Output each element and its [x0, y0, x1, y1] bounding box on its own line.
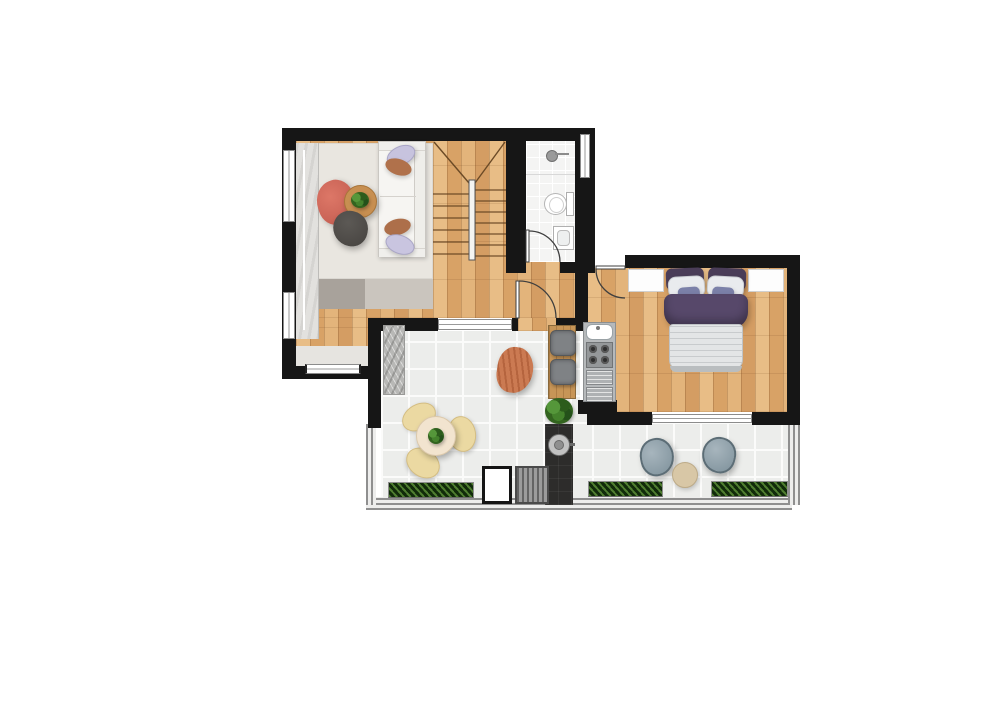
planter-left [388, 482, 474, 498]
railing-bottom [366, 497, 792, 510]
wall-terrace-left [368, 318, 381, 428]
toilet-seat [549, 197, 564, 213]
wall-bathroom-bottom-a [506, 262, 526, 273]
bed-duvet [664, 294, 748, 328]
kitchen-drawer-upper [586, 370, 613, 385]
cooktop-burner-1 [589, 345, 597, 353]
window-terrace-top [438, 319, 512, 330]
toilet-tank [566, 192, 574, 216]
dining-table-plant [428, 428, 444, 444]
bar-stool-2 [550, 359, 576, 385]
bathroom-sink-bowl [557, 230, 570, 246]
bar-stool-1 [550, 330, 576, 356]
nightstand-left [628, 269, 664, 292]
sofa-backrest [414, 142, 425, 256]
window-left-lower [283, 292, 295, 339]
shower-arm [555, 153, 569, 155]
shower-head [546, 150, 558, 162]
barbecue-handle [569, 443, 575, 446]
living-rug-band-light [365, 279, 433, 309]
cooktop-burner-3 [589, 356, 597, 364]
wall-bathroom-left [506, 141, 526, 262]
kitchen-faucet [596, 326, 600, 330]
bar-plant [545, 398, 573, 424]
wall-bedroom-bottom-b [752, 412, 800, 425]
planter-middle [588, 481, 663, 497]
nightstand-right [748, 269, 784, 292]
curtain-panel [296, 143, 319, 339]
coffee-table-plant [351, 192, 369, 208]
wall-bedroom-right [787, 255, 800, 425]
bed-footboard [670, 366, 742, 372]
window-bathroom-right [580, 134, 590, 178]
barbecue-center [554, 440, 564, 450]
wall-bedroom-top-b [625, 255, 800, 268]
wall-kitchen-stub [578, 400, 617, 414]
kitchen-drawer-lower [586, 387, 613, 402]
floor-plan-canvas [0, 0, 1000, 706]
lounge-side-table [672, 462, 698, 488]
window-bedroom-balcony [652, 414, 752, 423]
bed-sheet [669, 324, 743, 370]
wall-bedroom-top-a [587, 255, 595, 268]
wall-hall-right [575, 262, 588, 331]
cooktop-burner-4 [601, 356, 609, 364]
living-bottom-mat [296, 346, 368, 366]
railing-right [788, 418, 800, 505]
floor-hatch [482, 466, 512, 504]
planter-right [711, 481, 788, 497]
sofa-seat-divider [380, 196, 416, 197]
railing-left [366, 424, 376, 505]
curtain-rail-line [303, 150, 305, 330]
vertical-garden-panel [383, 325, 405, 395]
window-left-upper [283, 150, 295, 222]
drain-grate [515, 466, 549, 504]
cooktop-burner-2 [601, 345, 609, 353]
wall-top [282, 128, 595, 141]
shower-divider-line [526, 174, 575, 175]
window-living-bottom [305, 364, 361, 374]
